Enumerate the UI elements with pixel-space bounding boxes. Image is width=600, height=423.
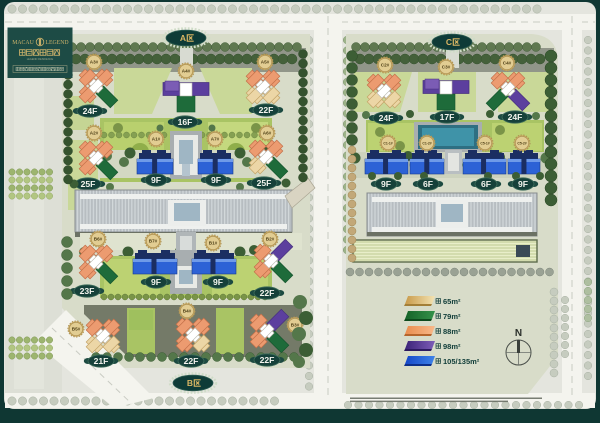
- svg-text:A1#: A1#: [152, 137, 161, 142]
- svg-text:B3#: B3#: [291, 323, 300, 328]
- svg-text:25F: 25F: [257, 178, 272, 188]
- svg-text:105/135m²: 105/135m²: [443, 357, 480, 366]
- svg-text:B6#: B6#: [94, 237, 103, 242]
- svg-text:24F: 24F: [379, 113, 394, 123]
- svg-text:23F: 23F: [80, 286, 95, 296]
- svg-text:98m²: 98m²: [443, 342, 461, 351]
- svg-text:9F: 9F: [213, 277, 223, 287]
- svg-text:22F: 22F: [259, 105, 274, 115]
- svg-text:C2#: C2#: [381, 63, 390, 68]
- svg-text:B4#: B4#: [183, 309, 192, 314]
- svg-text:A7#: A7#: [211, 137, 220, 142]
- svg-text:6F: 6F: [423, 179, 433, 189]
- svg-text:A: A: [180, 33, 186, 43]
- svg-text:9F: 9F: [518, 179, 528, 189]
- svg-text:N: N: [515, 328, 522, 339]
- svg-text:B5#: B5#: [72, 327, 81, 332]
- svg-text:22F: 22F: [260, 355, 275, 365]
- svg-text:C4#: C4#: [503, 61, 512, 66]
- svg-text:16F: 16F: [178, 117, 193, 127]
- svg-text:C: C: [446, 37, 452, 47]
- svg-text:17F: 17F: [440, 112, 455, 122]
- svg-text:B: B: [187, 378, 193, 388]
- svg-text:A2#: A2#: [90, 131, 99, 136]
- svg-text:9F: 9F: [151, 175, 161, 185]
- svg-text:C1-1#: C1-1#: [383, 142, 392, 146]
- svg-text:22F: 22F: [184, 356, 199, 366]
- svg-text:9F: 9F: [381, 179, 391, 189]
- svg-text:9F: 9F: [151, 277, 161, 287]
- svg-text:24F: 24F: [83, 106, 98, 116]
- svg-text:LEGEND: LEGEND: [45, 40, 68, 46]
- svg-text:65m²: 65m²: [443, 297, 461, 306]
- svg-text:C3#: C3#: [442, 65, 451, 70]
- svg-text:LEGEND RESIDENCE: LEGEND RESIDENCE: [27, 57, 54, 61]
- svg-text:6F: 6F: [481, 179, 491, 189]
- svg-text:22F: 22F: [260, 288, 275, 298]
- svg-text:A4#: A4#: [182, 69, 191, 74]
- svg-text:A6#: A6#: [263, 131, 272, 136]
- svg-text:C5-1#: C5-1#: [480, 142, 489, 146]
- svg-text:B7#: B7#: [149, 239, 158, 244]
- svg-text:A3#: A3#: [90, 60, 99, 65]
- svg-text:79m²: 79m²: [443, 312, 461, 321]
- svg-text:24F: 24F: [508, 112, 523, 122]
- svg-text:B1#: B1#: [209, 241, 218, 246]
- svg-text:C5-2#: C5-2#: [517, 142, 526, 146]
- svg-text:21F: 21F: [94, 356, 109, 366]
- svg-text:C1-2#: C1-2#: [422, 142, 431, 146]
- svg-text:MACAU: MACAU: [12, 40, 34, 46]
- svg-text:88m²: 88m²: [443, 327, 461, 336]
- svg-text:B2#: B2#: [266, 237, 275, 242]
- svg-text:9F: 9F: [211, 175, 221, 185]
- svg-text:25F: 25F: [81, 179, 96, 189]
- svg-text:A5#: A5#: [261, 60, 270, 65]
